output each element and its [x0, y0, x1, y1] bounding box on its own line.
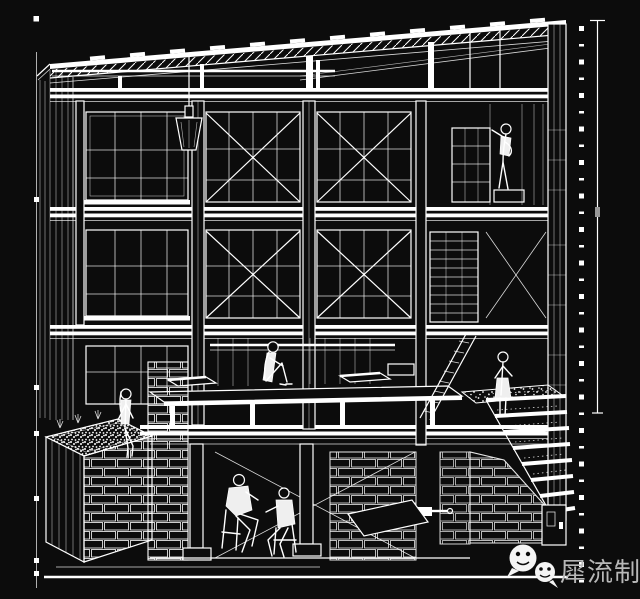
section-drawing: 犀流制报	[0, 0, 640, 599]
basement-door	[542, 505, 566, 545]
planter	[46, 410, 152, 562]
masonry-wall	[440, 452, 470, 544]
watermark-text: 犀流制报	[560, 558, 640, 588]
masonry-pier	[148, 362, 188, 560]
screenshot-root: 犀流制报	[0, 0, 640, 599]
